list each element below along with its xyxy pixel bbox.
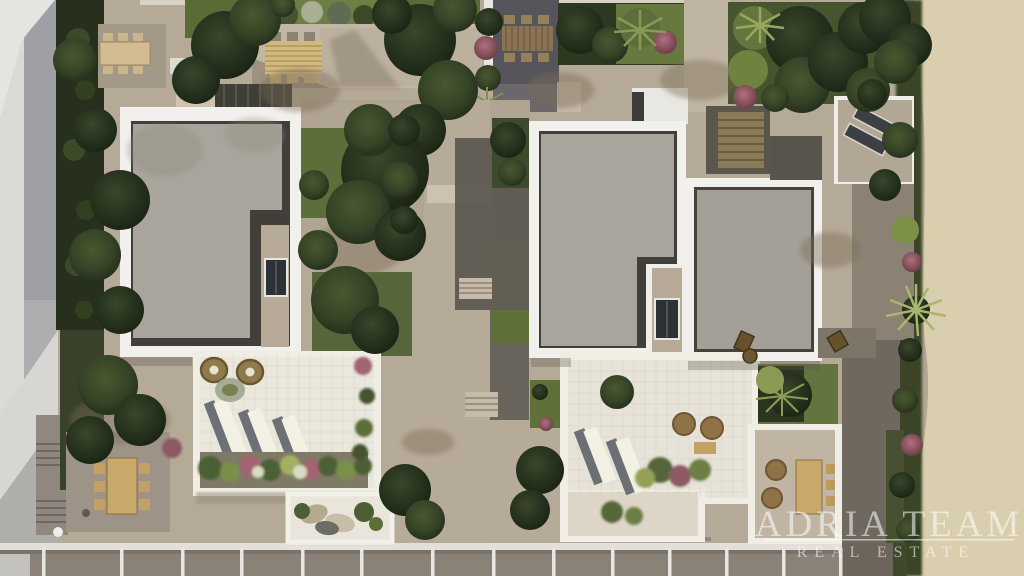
svg-text:ADRIA TEAM: ADRIA TEAM: [755, 504, 1024, 545]
svg-text:REAL ESTATE: REAL ESTATE: [797, 544, 976, 561]
